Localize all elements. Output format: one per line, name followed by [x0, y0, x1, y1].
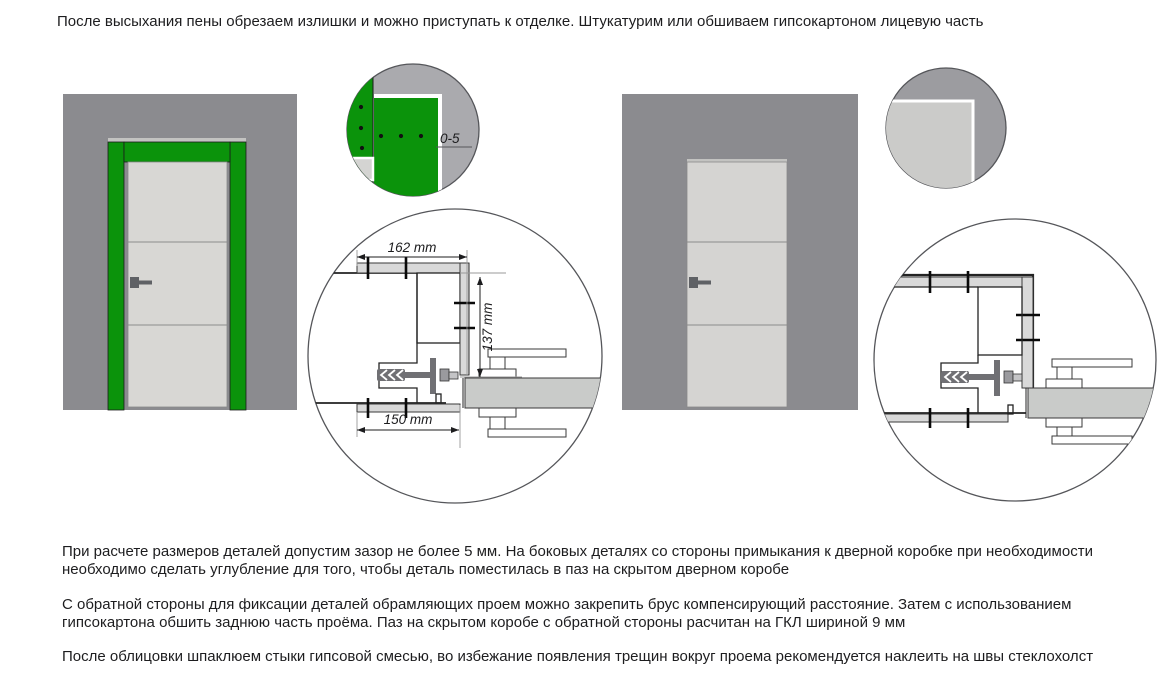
left-section-detail-circle: 162 mm 137 mm 150 mm: [308, 209, 605, 503]
frame-groove: [352, 158, 373, 180]
dimension-label-150: 150 mm: [384, 412, 433, 427]
instruction-page: После высыхания пены обрезаем излишки и …: [0, 0, 1170, 681]
note-paragraph-1: При расчете размеров деталей допустим за…: [62, 543, 1162, 578]
right-corner-detail-circle: [878, 68, 1006, 197]
right-door-elevation: [622, 94, 858, 410]
dimension-label-137: 137 mm: [480, 303, 495, 352]
opening-top-edge: [687, 159, 787, 162]
finished-corner: [878, 101, 973, 197]
lintel-edge: [108, 138, 246, 142]
left-door-elevation: [63, 94, 297, 410]
left-corner-detail-circle: 0-5: [345, 62, 479, 202]
note-paragraph-3: После облицовки шпаклюем стыки гипсовой …: [62, 648, 1162, 666]
right-section-detail-circle: [874, 219, 1160, 501]
gap-label: 0-5: [440, 131, 460, 146]
leaf-section-right: [1028, 388, 1160, 418]
dimension-label-162: 162 mm: [388, 240, 437, 255]
note-paragraph-2: С обратной стороны для фиксации деталей …: [62, 596, 1162, 631]
illustration-canvas: 0-5: [0, 0, 1170, 681]
leaf-section: [465, 378, 605, 408]
